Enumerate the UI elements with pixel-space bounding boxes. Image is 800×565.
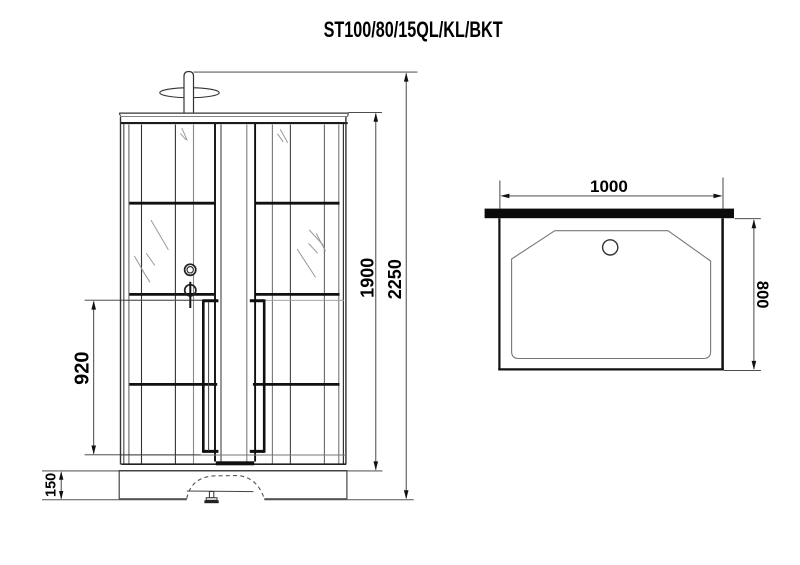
svg-text:ST100/80/15QL/KL/BKT: ST100/80/15QL/KL/BKT bbox=[324, 18, 503, 43]
svg-text:920: 920 bbox=[71, 352, 93, 385]
svg-text:1900: 1900 bbox=[358, 258, 378, 298]
svg-text:2250: 2250 bbox=[385, 259, 405, 299]
svg-text:1000: 1000 bbox=[590, 177, 628, 196]
svg-text:800: 800 bbox=[753, 281, 771, 309]
svg-text:150: 150 bbox=[43, 473, 59, 497]
